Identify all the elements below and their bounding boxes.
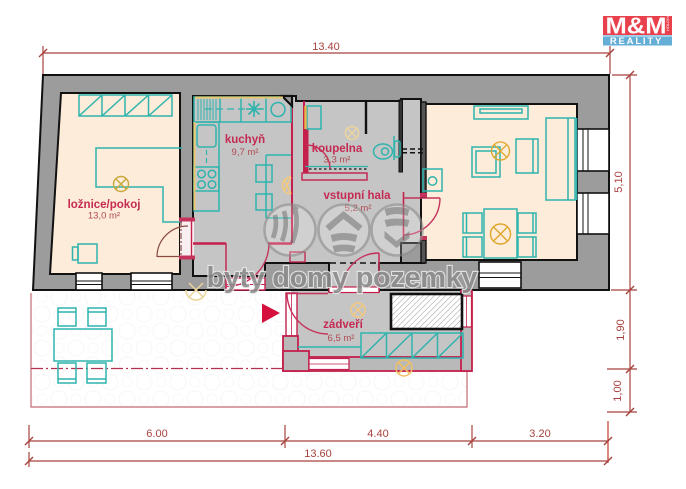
- svg-text:5,10: 5,10: [613, 171, 625, 192]
- svg-text:HOLDING: HOLDING: [665, 13, 670, 31]
- svg-text:3,3 m²: 3,3 m²: [324, 155, 351, 166]
- svg-text:4.40: 4.40: [367, 428, 388, 440]
- svg-text:REALITY: REALITY: [610, 36, 663, 47]
- svg-text:13.40: 13.40: [312, 41, 340, 53]
- svg-text:13.60: 13.60: [304, 448, 332, 460]
- svg-text:byty domy pozemky: byty domy pozemky: [207, 262, 478, 294]
- svg-text:1,00: 1,00: [612, 380, 624, 401]
- svg-text:6,5 m²: 6,5 m²: [328, 333, 355, 344]
- svg-text:vstupní hala: vstupní hala: [323, 190, 391, 202]
- svg-text:13,0 m²: 13,0 m²: [88, 211, 120, 222]
- svg-text:9,7 m²: 9,7 m²: [232, 147, 259, 158]
- svg-text:ložnice/pokoj: ložnice/pokoj: [68, 199, 141, 211]
- svg-text:kuchyň: kuchyň: [225, 134, 265, 146]
- svg-text:1,90: 1,90: [615, 319, 627, 340]
- svg-text:3.20: 3.20: [529, 428, 550, 440]
- svg-text:koupelna: koupelna: [312, 143, 363, 155]
- svg-text:6.00: 6.00: [146, 428, 167, 440]
- svg-text:zádveří: zádveří: [323, 319, 363, 331]
- svg-text:M&M: M&M: [606, 13, 667, 39]
